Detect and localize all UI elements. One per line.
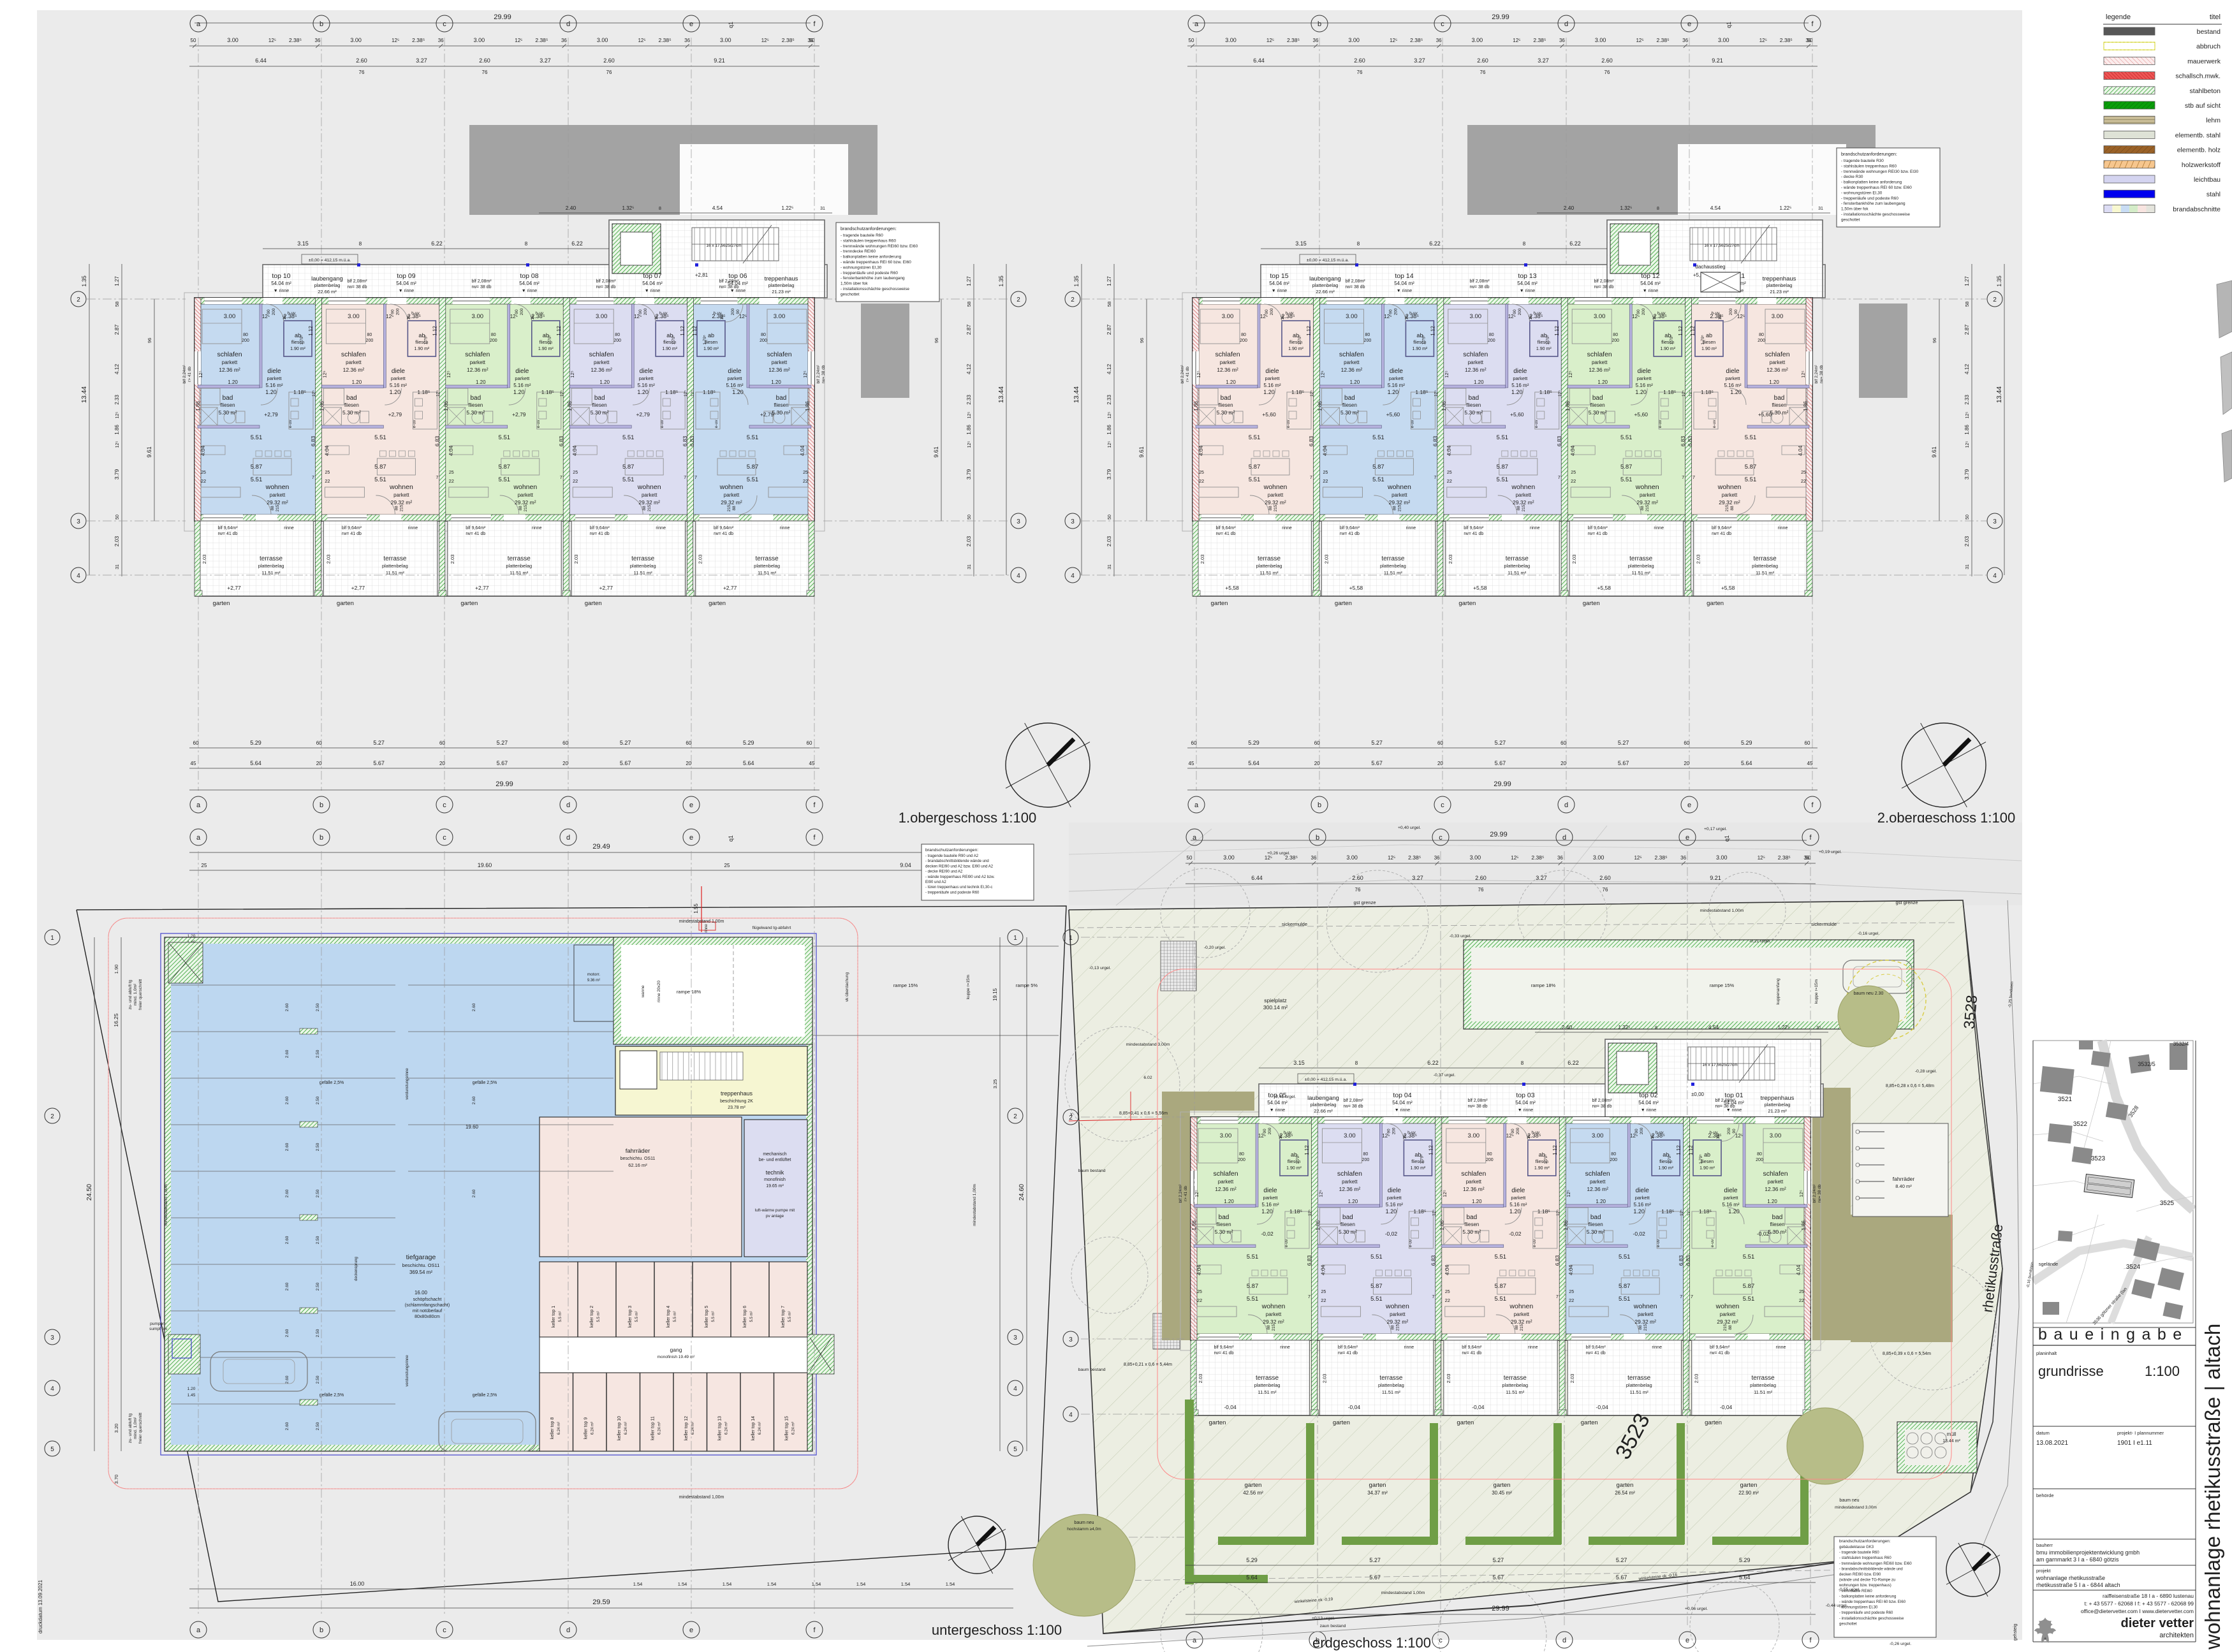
svg-text:2.50: 2.50 — [316, 1422, 320, 1430]
svg-text:5.67: 5.67 — [1371, 760, 1383, 766]
svg-text:6.24 m²: 6.24 m² — [691, 1422, 695, 1435]
svg-text:2.50: 2.50 — [316, 1236, 320, 1244]
svg-text:3.27: 3.27 — [1412, 875, 1423, 881]
svg-text:76: 76 — [1604, 69, 1610, 75]
svg-text:rampe 15%: rampe 15% — [1710, 983, 1735, 988]
svg-text:garten: garten — [1494, 1482, 1511, 1489]
svg-text:- installationsschächte gescho: - installationsschächte geschossweise — [1839, 1617, 1904, 1621]
svg-text:druckdatum 13.09.2021: druckdatum 13.09.2021 — [38, 1579, 43, 1634]
svg-text:25: 25 — [202, 863, 207, 868]
svg-text:c: c — [1441, 801, 1444, 809]
svg-text:2.60: 2.60 — [479, 57, 490, 64]
svg-text:5: 5 — [1013, 1446, 1017, 1453]
svg-text:5.27: 5.27 — [373, 740, 385, 746]
svg-text:19.60: 19.60 — [466, 1124, 479, 1130]
svg-text:3.79: 3.79 — [114, 469, 120, 479]
svg-text:34.37 m²: 34.37 m² — [1367, 1490, 1388, 1496]
svg-text:vk überdachung: vk überdachung — [845, 972, 849, 1002]
svg-text:2: 2 — [1069, 1115, 1073, 1122]
svg-text:5.27: 5.27 — [1493, 1557, 1504, 1563]
svg-text:+0,26 urgel.: +0,26 urgel. — [1267, 851, 1290, 856]
svg-text:36: 36 — [1557, 855, 1563, 861]
svg-text:2.60: 2.60 — [285, 1282, 290, 1290]
svg-text:1.86: 1.86 — [114, 425, 120, 435]
svg-text:2.50: 2.50 — [316, 1375, 320, 1384]
svg-text:freier querschnitt: freier querschnitt — [138, 979, 143, 1011]
svg-text:76: 76 — [1480, 69, 1486, 75]
svg-text:geschottet: geschottet — [1841, 217, 1860, 222]
svg-text:300.14 m²: 300.14 m² — [1263, 1004, 1288, 1011]
svg-text:mindestabstand 1,00m: mindestabstand 1,00m — [679, 1495, 724, 1500]
svg-text:brandschutzanforderungen:: brandschutzanforderungen: — [1841, 151, 1897, 157]
svg-text:2: 2 — [1017, 296, 1020, 303]
svg-text:30.45 m²: 30.45 m² — [1492, 1490, 1512, 1496]
svg-text:6.02: 6.02 — [1143, 1076, 1152, 1080]
svg-text:3521: 3521 — [2058, 1096, 2073, 1103]
svg-text:+: + — [2044, 1637, 2046, 1641]
svg-text:r> 41 db: r> 41 db — [187, 367, 192, 382]
svg-text:45: 45 — [1189, 761, 1194, 766]
svg-text:▼ rinne: ▼ rinne — [1520, 289, 1536, 293]
svg-text:▼ rinne: ▼ rinne — [522, 289, 538, 293]
svg-text:76: 76 — [359, 69, 365, 75]
svg-text:5.27: 5.27 — [1369, 1557, 1381, 1563]
svg-text:tiefgarage: tiefgarage — [406, 1254, 436, 1261]
svg-text:sickermulde: sickermulde — [1811, 921, 1837, 927]
svg-text:-0,04: -0,04 — [1348, 1404, 1361, 1410]
svg-text:- wohnungstüren EI,30: - wohnungstüren EI,30 — [841, 265, 882, 270]
svg-text:4.12: 4.12 — [1106, 363, 1112, 374]
svg-text:dachausstieg: dachausstieg — [1695, 264, 1725, 270]
svg-text:blf 2,24m²: blf 2,24m² — [1812, 1184, 1817, 1203]
svg-text:2.03: 2.03 — [965, 536, 972, 546]
svg-text:96: 96 — [1932, 338, 1937, 343]
svg-text:4.12: 4.12 — [1964, 363, 1970, 374]
svg-text:12⁵: 12⁵ — [638, 38, 645, 43]
svg-text:3.27: 3.27 — [1414, 57, 1425, 64]
svg-text:8,85+0,28 x 0,6 = 5,48m: 8,85+0,28 x 0,6 = 5,48m — [1886, 1084, 1934, 1088]
svg-text:9.21: 9.21 — [714, 57, 725, 64]
svg-text:2.60: 2.60 — [285, 1329, 290, 1337]
svg-text:b: b — [1316, 834, 1319, 842]
svg-text:c: c — [443, 20, 446, 28]
svg-text:6.24 m²: 6.24 m² — [725, 1422, 729, 1435]
svg-text:3.27: 3.27 — [1538, 57, 1549, 64]
svg-text:3.70: 3.70 — [114, 1475, 119, 1484]
svg-text:garten: garten — [1617, 1482, 1634, 1489]
svg-text:2.60: 2.60 — [285, 1236, 290, 1244]
svg-text:blf 2,24m²: blf 2,24m² — [1178, 1184, 1183, 1203]
svg-text:1.86: 1.86 — [1964, 425, 1970, 435]
svg-text:- wände treppenhaus REI 60 bzw: - wände treppenhaus REI 60 bzw. EI60 — [1841, 186, 1912, 190]
svg-text:wohnanlage rhetikusstraße |: wohnanlage rhetikusstraße | altach — [2201, 1324, 2224, 1650]
svg-text:brandabschnitte: brandabschnitte — [2173, 205, 2221, 213]
svg-text:+2,81: +2,81 — [695, 272, 709, 278]
svg-text:- stahlsäulen treppenhaus R60: - stahlsäulen treppenhaus R60 — [841, 238, 896, 243]
svg-text:76: 76 — [1355, 887, 1361, 893]
svg-text:2.60: 2.60 — [285, 1189, 290, 1197]
svg-text:+2,79: +2,79 — [636, 411, 650, 418]
svg-text:▼ rinne: ▼ rinne — [730, 289, 746, 293]
svg-text:d: d — [566, 801, 570, 809]
svg-text:top 03: top 03 — [1516, 1092, 1534, 1099]
svg-text:2.38⁵: 2.38⁵ — [1780, 37, 1793, 43]
svg-text:legende: legende — [2106, 13, 2131, 21]
svg-text:raiffeisenstraße 18 I a - 68: raiffeisenstraße 18 I a - 6890 lustenau — [2103, 1593, 2194, 1599]
svg-text:- treppenläufe und podeste R60: - treppenläufe und podeste R60 — [1841, 196, 1898, 201]
svg-text:-0,55 urgel.: -0,55 urgel. — [1839, 1588, 1860, 1592]
svg-text:36: 36 — [1434, 855, 1440, 861]
svg-text:9.61: 9.61 — [1138, 446, 1145, 458]
svg-text:12⁵: 12⁵ — [761, 38, 769, 43]
svg-text:bestand: bestand — [2197, 28, 2221, 36]
svg-text:3.00: 3.00 — [597, 37, 608, 43]
svg-text:60: 60 — [1560, 740, 1566, 746]
svg-text:369.54 m²: 369.54 m² — [409, 1269, 432, 1275]
svg-text:5.67: 5.67 — [373, 760, 385, 766]
svg-text:d: d — [1562, 834, 1566, 842]
svg-text:keller top 7: keller top 7 — [781, 1306, 786, 1327]
svg-text:-0,28 urgel.: -0,28 urgel. — [1915, 1069, 1937, 1074]
svg-text:2: 2 — [77, 296, 80, 303]
svg-text:e: e — [689, 1626, 693, 1634]
svg-text:titel: titel — [2210, 13, 2221, 21]
svg-text:2.60: 2.60 — [1475, 875, 1487, 881]
svg-text:4: 4 — [1993, 573, 1997, 580]
svg-text:5.5 m²: 5.5 m² — [559, 1311, 562, 1322]
svg-text:c: c — [1441, 20, 1444, 28]
svg-text:60: 60 — [1191, 740, 1197, 746]
svg-text:36: 36 — [561, 38, 567, 43]
svg-text:5.64: 5.64 — [743, 760, 754, 766]
svg-text:1.35: 1.35 — [81, 275, 87, 287]
svg-text:9.21: 9.21 — [1710, 875, 1721, 881]
svg-text:garten: garten — [1369, 1482, 1386, 1489]
svg-text:2.38⁵: 2.38⁵ — [289, 37, 302, 43]
svg-text:2.60: 2.60 — [356, 57, 367, 64]
svg-text:12⁵: 12⁵ — [1108, 412, 1112, 419]
svg-text:▼ rinne: ▼ rinne — [1270, 1108, 1286, 1113]
svg-text:- stahlsäulen treppenhaus R60: - stahlsäulen treppenhaus R60 — [1839, 1556, 1891, 1560]
svg-text:12⁵: 12⁵ — [1267, 38, 1274, 43]
svg-text:96: 96 — [934, 338, 939, 343]
svg-text:top 04: top 04 — [1393, 1092, 1411, 1099]
svg-text:rampe 18%: rampe 18% — [1531, 983, 1556, 988]
svg-text:keller top 10: keller top 10 — [617, 1416, 622, 1440]
svg-text:50: 50 — [1805, 855, 1811, 861]
svg-text:wanne: wanne — [641, 985, 645, 998]
svg-text:5.5 m²: 5.5 m² — [788, 1311, 792, 1322]
svg-text:12⁵: 12⁵ — [1513, 38, 1520, 43]
svg-text:a: a — [1194, 801, 1199, 809]
svg-text:baum bestand: baum bestand — [1078, 1169, 1105, 1173]
svg-text:12⁵: 12⁵ — [1511, 855, 1518, 861]
svg-text:54.04 m²: 54.04 m² — [1724, 1100, 1744, 1106]
svg-text:2.60: 2.60 — [603, 57, 615, 64]
svg-text:c: c — [1439, 1637, 1443, 1644]
svg-text:- tragende bauteile R60: - tragende bauteile R60 — [841, 233, 883, 238]
svg-text:bauherr: bauherr — [2036, 1542, 2053, 1548]
svg-text:top 10: top 10 — [272, 272, 290, 280]
svg-text:c: c — [443, 834, 446, 842]
svg-text:54.04 m²: 54.04 m² — [519, 281, 540, 286]
svg-text:3.00: 3.00 — [227, 37, 239, 43]
svg-text:-0,37 urgel.: -0,37 urgel. — [1434, 1073, 1455, 1078]
svg-text:r> 41 db: r> 41 db — [1186, 367, 1190, 382]
svg-text:- fensterbankhöhe zum laubenga: - fensterbankhöhe zum laubengang — [841, 276, 905, 281]
svg-text:1.54: 1.54 — [812, 1581, 821, 1587]
svg-text:2: 2 — [1993, 296, 1997, 303]
svg-text:-0,04: -0,04 — [1720, 1404, 1733, 1410]
svg-text:5.29: 5.29 — [1741, 740, 1752, 746]
svg-text:c: c — [443, 801, 446, 809]
svg-text:bmu immobilienprojektentwicklu: bmu immobilienprojektentwicklung gmbh — [2036, 1549, 2140, 1556]
svg-text:3.00: 3.00 — [1348, 37, 1360, 43]
svg-text:b: b — [1318, 20, 1321, 28]
svg-text:2.60: 2.60 — [1477, 57, 1488, 64]
svg-text:54.04 m²: 54.04 m² — [642, 281, 663, 286]
svg-text:5.27: 5.27 — [1618, 740, 1629, 746]
svg-text:2.38⁵: 2.38⁵ — [1287, 37, 1300, 43]
svg-text:-0,04: -0,04 — [1472, 1404, 1485, 1410]
svg-text:holzwerkstoff: holzwerkstoff — [2182, 161, 2221, 169]
svg-text:2.60: 2.60 — [285, 1003, 290, 1011]
svg-text:decken REI90 und A2 bzw. EI90: decken REI90 und A2 bzw. EI90 und A2 — [925, 865, 994, 868]
svg-text:top 06: top 06 — [728, 272, 747, 280]
svg-text:mind. 1,0m²: mind. 1,0m² — [133, 1417, 138, 1439]
svg-text:rinne: rinne — [705, 924, 709, 933]
svg-text:-0,04: -0,04 — [1596, 1404, 1609, 1410]
svg-text:elementb. stahl: elementb. stahl — [2175, 131, 2221, 139]
svg-text:-0,02: -0,02 — [1509, 1231, 1522, 1237]
svg-text:2: 2 — [50, 1113, 54, 1120]
svg-text:stahlbeton: stahlbeton — [2190, 87, 2221, 95]
svg-text:spielplatz: spielplatz — [1264, 997, 1286, 1004]
svg-text:gang: gang — [670, 1347, 682, 1353]
svg-text:mindestabstand 3,00m: mindestabstand 3,00m — [1835, 1505, 1877, 1510]
svg-text:9.61: 9.61 — [1931, 446, 1937, 458]
svg-text:1.obergeschoss 1:100: 1.obergeschoss 1:100 — [899, 810, 1037, 826]
svg-text:20: 20 — [686, 761, 691, 766]
svg-text:54.04 m²: 54.04 m² — [1517, 281, 1538, 286]
svg-text:d: d — [566, 834, 570, 842]
svg-text:3525: 3525 — [2160, 1200, 2175, 1207]
svg-text:5.64: 5.64 — [1741, 760, 1752, 766]
svg-text:+2,77: +2,77 — [227, 585, 241, 591]
svg-text:9.61: 9.61 — [146, 446, 152, 458]
svg-text:1: 1 — [50, 935, 54, 942]
svg-text:+5,58: +5,58 — [1225, 585, 1239, 591]
svg-text:2: 2 — [1013, 1113, 1017, 1120]
svg-text:elementb. holz: elementb. holz — [2177, 147, 2221, 154]
svg-text:▼ rinne: ▼ rinne — [1641, 1108, 1657, 1113]
svg-text:2.60: 2.60 — [285, 1422, 290, 1430]
svg-text:mind. 1,0m²: mind. 1,0m² — [133, 983, 138, 1005]
svg-text:1,50m über fok: 1,50m über fok — [841, 282, 868, 286]
svg-text:grundrisse: grundrisse — [2038, 1363, 2104, 1379]
svg-text:3.00: 3.00 — [1223, 854, 1235, 861]
svg-text:architekten: architekten — [2159, 1632, 2194, 1639]
svg-text:+2,79: +2,79 — [388, 411, 402, 418]
svg-text:76: 76 — [606, 69, 612, 75]
svg-text:- trennwände wohnungen REI30 b: - trennwände wohnungen REI30 bzw. EI30 — [1841, 170, 1919, 174]
svg-text:31: 31 — [967, 564, 972, 569]
svg-text:b: b — [319, 834, 323, 842]
svg-text:2.38⁵: 2.38⁵ — [1531, 854, 1544, 861]
svg-text:2.03: 2.03 — [1106, 536, 1112, 546]
svg-text:rinne 20x20: rinne 20x20 — [657, 981, 661, 1002]
svg-text:8,85+0,41 x 0,6 = 5,56m: 8,85+0,41 x 0,6 = 5,56m — [1119, 1111, 1168, 1116]
svg-text:60: 60 — [1805, 740, 1810, 746]
svg-text:36: 36 — [1436, 38, 1442, 43]
svg-text:5.29: 5.29 — [1739, 1557, 1751, 1563]
svg-text:top 09: top 09 — [397, 272, 415, 280]
svg-text:e: e — [689, 801, 693, 809]
svg-text:1.20: 1.20 — [187, 934, 196, 939]
svg-text:19.15: 19.15 — [992, 988, 998, 1001]
svg-text:top 15: top 15 — [1270, 272, 1288, 280]
svg-text:12⁵: 12⁵ — [1265, 855, 1272, 861]
svg-text:+5,60: +5,60 — [1510, 411, 1524, 418]
svg-text:58: 58 — [1964, 302, 1970, 307]
svg-text:geschottet: geschottet — [841, 292, 860, 296]
svg-text:29.59: 29.59 — [592, 1598, 610, 1606]
svg-text:keller top 2: keller top 2 — [590, 1306, 594, 1327]
svg-text:+2,77: +2,77 — [475, 585, 489, 591]
svg-text:12⁵: 12⁵ — [1388, 855, 1395, 861]
svg-text:60: 60 — [1437, 740, 1443, 746]
svg-text:4.12: 4.12 — [965, 363, 972, 374]
svg-text:+2,77: +2,77 — [723, 585, 737, 591]
svg-text:12⁵: 12⁵ — [1759, 38, 1767, 43]
svg-text:+2,79: +2,79 — [264, 411, 278, 418]
svg-text:▼ rinne: ▼ rinne — [1272, 289, 1288, 293]
svg-text:54.04 m²: 54.04 m² — [396, 281, 416, 286]
svg-text:60: 60 — [686, 740, 691, 746]
svg-text:rw= 38 db: rw= 38 db — [1817, 1184, 1822, 1202]
svg-text:54.04 m²: 54.04 m² — [1640, 281, 1661, 286]
svg-text:54.04 m²: 54.04 m² — [728, 281, 748, 286]
svg-text:zaun bestand: zaun bestand — [1320, 1624, 1346, 1628]
svg-text:29.99: 29.99 — [1490, 831, 1508, 838]
svg-text:29.49: 29.49 — [592, 843, 610, 851]
svg-text:gst grenze: gst grenze — [1895, 900, 1918, 905]
svg-text:baueingabe: baueingabe — [2038, 1326, 2189, 1343]
svg-text:3.00: 3.00 — [1225, 37, 1237, 43]
svg-text:d: d — [1564, 801, 1568, 809]
svg-text:5.27: 5.27 — [497, 740, 508, 746]
svg-text:brandschutzanforderungen:: brandschutzanforderungen: — [1839, 1539, 1891, 1544]
svg-text:54.04 m²: 54.04 m² — [271, 281, 291, 286]
svg-text:1: 1 — [1013, 935, 1017, 942]
svg-text:2.50: 2.50 — [316, 1003, 320, 1011]
svg-text:q1: q1 — [728, 22, 734, 28]
svg-text:e: e — [689, 20, 693, 28]
svg-text:sgelände: sgelände — [2039, 1261, 2058, 1267]
svg-text:mindestabstand 1,00m: mindestabstand 1,00m — [679, 919, 724, 924]
svg-text:blf 2,24m²: blf 2,24m² — [1814, 365, 1819, 384]
svg-text:3: 3 — [1013, 1334, 1017, 1341]
svg-text:2.50: 2.50 — [316, 1282, 320, 1290]
svg-text:2.50: 2.50 — [316, 1189, 320, 1197]
svg-text:- trennwände wohnungen REI60 b: - trennwände wohnungen REI60 bzw. EI60 — [1839, 1562, 1912, 1566]
svg-text:2.38⁵: 2.38⁵ — [1410, 37, 1423, 43]
svg-text:5.29: 5.29 — [1246, 1557, 1258, 1563]
svg-text:blf 2,24m²: blf 2,24m² — [1180, 365, 1185, 384]
svg-text:22.90 m²: 22.90 m² — [1738, 1490, 1759, 1496]
svg-text:+0,13 urgel.: +0,13 urgel. — [1312, 1616, 1335, 1621]
svg-text:monofinish: monofinish — [764, 1178, 786, 1182]
svg-text:1.86: 1.86 — [1106, 425, 1112, 435]
svg-text:76: 76 — [1478, 887, 1484, 893]
svg-text:zu- und abluft tg: zu- und abluft tg — [128, 979, 133, 1009]
svg-text:50: 50 — [967, 515, 972, 520]
svg-text:d: d — [1564, 20, 1568, 28]
svg-text:2.33: 2.33 — [1964, 395, 1970, 405]
svg-text:hochstamm ≥4,0m: hochstamm ≥4,0m — [1067, 1527, 1101, 1531]
svg-text:▼ rinne: ▼ rinne — [1518, 1108, 1534, 1113]
svg-text:sickermulde: sickermulde — [1282, 921, 1307, 927]
svg-text:blf 2,24m²: blf 2,24m² — [182, 365, 187, 384]
svg-text:2.60: 2.60 — [285, 1143, 290, 1151]
svg-text:2.60: 2.60 — [1354, 57, 1365, 64]
svg-text:office@dietervetter.com I ww: office@dietervetter.com I www.dietervett… — [2081, 1608, 2194, 1614]
svg-text:pv anlage: pv anlage — [766, 1214, 784, 1218]
svg-text:4: 4 — [1017, 573, 1020, 580]
svg-text:54.04 m²: 54.04 m² — [1392, 1100, 1413, 1106]
svg-text:2.50: 2.50 — [316, 1329, 320, 1337]
svg-text:top 08: top 08 — [520, 272, 538, 280]
svg-text:a: a — [196, 1626, 201, 1634]
svg-text:12⁵: 12⁵ — [1390, 38, 1397, 43]
svg-text:+2,77: +2,77 — [351, 585, 365, 591]
svg-text:kuppenanfang: kuppenanfang — [1776, 978, 1780, 1005]
svg-text:projekt: projekt — [2036, 1568, 2051, 1574]
svg-text:2.38⁵: 2.38⁵ — [535, 37, 548, 43]
svg-text:- wände treppenhaus REI 60 bzw: - wände treppenhaus REI 60 bzw. EI60 — [1839, 1600, 1906, 1604]
svg-text:rw= 38 db: rw= 38 db — [1819, 365, 1824, 383]
svg-text:q1: q1 — [1724, 835, 1730, 842]
svg-text:freier querschnitt: freier querschnitt — [138, 1413, 143, 1444]
svg-text:pumpen-: pumpen- — [150, 1322, 166, 1326]
svg-text:9.61: 9.61 — [933, 446, 939, 458]
svg-text:brandschutzanforderungen:: brandschutzanforderungen: — [841, 226, 897, 231]
svg-text:- decke R30: - decke R30 — [1841, 175, 1863, 179]
svg-text:beschichtung 2K: beschichtung 2K — [720, 1099, 753, 1104]
svg-text:mindestabstand 3,00m: mindestabstand 3,00m — [1126, 1042, 1170, 1047]
svg-text:36: 36 — [1680, 855, 1686, 861]
svg-text:2.38⁵: 2.38⁵ — [1778, 854, 1791, 861]
svg-text:▼ rinne: ▼ rinne — [1643, 289, 1659, 293]
svg-text:d: d — [566, 1626, 570, 1634]
svg-text:5.64: 5.64 — [1246, 1574, 1258, 1581]
svg-text:5.64: 5.64 — [1739, 1574, 1751, 1581]
svg-text:54.04 m²: 54.04 m² — [1394, 281, 1414, 286]
svg-text:keller top 8: keller top 8 — [550, 1417, 555, 1439]
svg-text:-0,02: -0,02 — [1633, 1231, 1646, 1237]
svg-text:3522: 3522 — [2073, 1121, 2088, 1128]
svg-text:3: 3 — [1993, 518, 1997, 525]
svg-text:20: 20 — [562, 761, 568, 766]
svg-text:zu- und abluft tg: zu- und abluft tg — [128, 1413, 133, 1443]
svg-text:3532/4: 3532/4 — [2173, 1041, 2189, 1047]
svg-text:2.33: 2.33 — [114, 395, 120, 405]
svg-text:45: 45 — [809, 761, 815, 766]
svg-text:- installationsschächte gescho: - installationsschächte geschossweise — [1841, 212, 1910, 217]
svg-text:planinhalt: planinhalt — [2036, 1350, 2057, 1356]
svg-text:- balkonplatten keine anforder: - balkonplatten keine anforderung — [1839, 1595, 1896, 1598]
svg-text:2.60: 2.60 — [1599, 875, 1611, 881]
